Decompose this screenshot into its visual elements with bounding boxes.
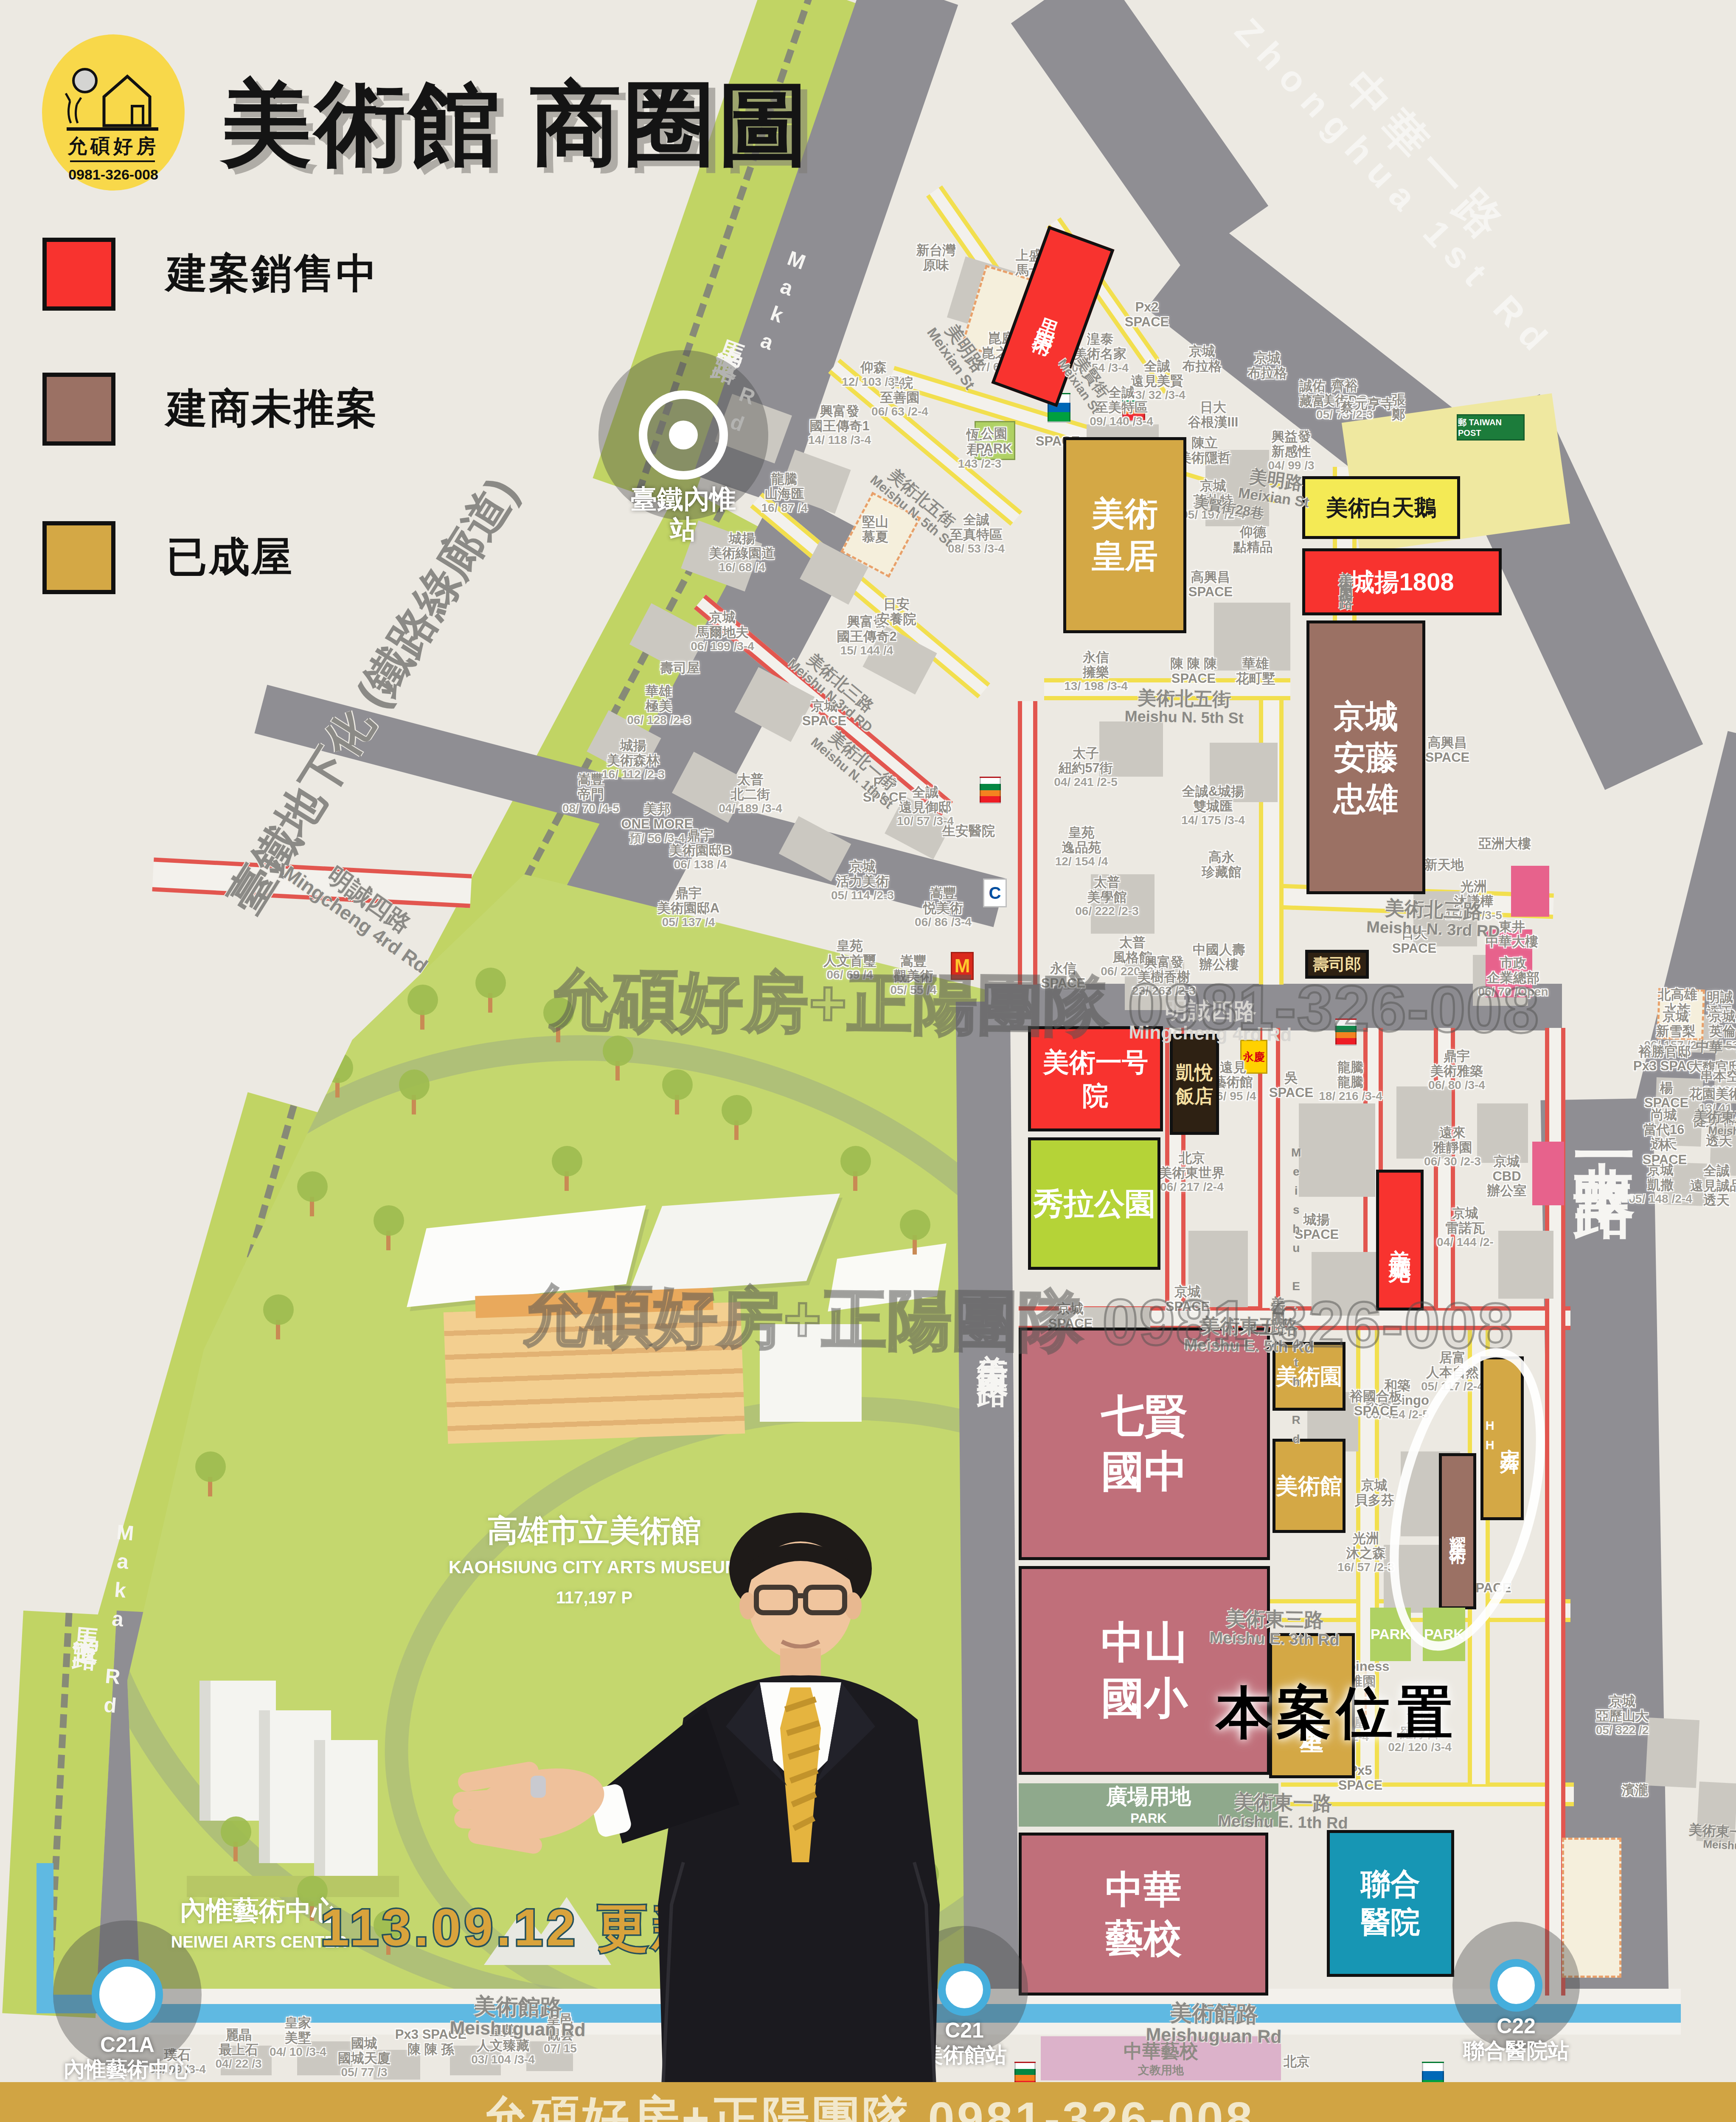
station-name-臺鐵內惟站: 臺鐵內惟站 <box>620 484 747 545</box>
building-美術館: 美術館 <box>1273 1439 1346 1533</box>
tree-icon <box>662 1069 693 1100</box>
tree-icon <box>280 968 311 998</box>
map-label: 高興昌SPACE <box>1188 570 1233 599</box>
building-label: 美術館 <box>1276 1472 1342 1500</box>
map-label: 京城貝多芬 <box>1355 1478 1394 1507</box>
map-label: 新台灣原味 <box>916 243 956 272</box>
map-label: 華雄花町墅 <box>1236 657 1275 686</box>
building-美術皇居: 美術皇居 <box>1063 437 1186 633</box>
map-label: 吳SPACE <box>1269 1071 1314 1100</box>
legend-item-completed: 已成屋 <box>42 521 294 594</box>
road-label-美術北五街: 美術北五街Meishu N. 5th St <box>1124 688 1244 727</box>
tree-icon <box>552 1146 582 1176</box>
building-label: 美術一号院 <box>1031 1045 1160 1113</box>
tree-icon <box>297 1171 328 1202</box>
tree-icon <box>399 1069 430 1100</box>
carrefour-icon: C <box>983 879 1007 907</box>
building-label: 中華藝校 <box>1105 1865 1182 1963</box>
page-title: 美術館 商圈圖 <box>221 64 812 187</box>
station-ring-C21A <box>92 1959 163 2030</box>
map-label: 濱瀧 <box>1622 1783 1648 1798</box>
map-label: 國城國城天廈05/ 77 /3 <box>338 2036 390 2079</box>
map-label: 皇苑逸品苑12/ 154 /4 <box>1055 825 1108 868</box>
building-秀拉公園: 秀拉公園 <box>1028 1137 1160 1270</box>
map-label: 蔡 <box>1341 400 1354 415</box>
building-label: 凱悅飯店 <box>1176 1061 1213 1109</box>
building-label: 秀拉公園 <box>1033 1184 1155 1223</box>
map-label: 京城雷諾瓦04/ 144 /2- <box>1437 1206 1494 1249</box>
tree-icon <box>357 972 361 991</box>
map-label: 龍騰龍騰18/ 216 /3-4 <box>1319 1060 1382 1103</box>
tree-icon <box>722 1095 752 1126</box>
building-label: 聯合醫院 <box>1361 1865 1420 1941</box>
map-label: 仰德點精品 <box>1233 525 1273 554</box>
map-label: 全誠遠見御邸10/ 57 /3-4 <box>897 785 954 828</box>
poster-canvas: ◉CM永慶郵 TAIWAN POST蔡上盛建設馬卡名墅新台灣原味崑庭崑之庭17/… <box>0 0 1736 2122</box>
station-name-C22: C22聯合醫院站 <box>1431 2014 1601 2063</box>
map-label: 京城亞歷山大05/ 322 /2 <box>1596 1694 1649 1737</box>
station-ring-C22 <box>1490 1959 1542 2012</box>
tree-icon <box>840 1146 871 1176</box>
building-聯合醫院: 聯合醫院 <box>1327 1830 1454 1977</box>
building-中華藝校: 中華藝校 <box>1019 1833 1268 1996</box>
building-label: 美術皇居 <box>1092 493 1158 578</box>
pink-building <box>1532 1142 1564 1205</box>
tree-icon <box>475 968 506 998</box>
building-footprint <box>1299 1103 1375 1197</box>
map-label: 裕國合板SPACE <box>1350 1389 1402 1418</box>
map-label: 日安安養院 <box>877 597 916 626</box>
legend-label: 已成屋 <box>166 530 294 585</box>
tree-icon <box>221 1816 251 1847</box>
map-label: Px2SPACE <box>1125 300 1169 329</box>
legend-label: 建案銷售中 <box>166 247 379 302</box>
tree-icon <box>195 1451 226 1482</box>
building-label: 美術白天鵝 <box>1326 494 1436 522</box>
lrt-line <box>37 1863 53 2012</box>
map-label: 太普美學館06/ 222 /2-3 <box>1075 875 1138 918</box>
building-label: 里山美術 <box>1037 301 1068 332</box>
legend-swatch-red <box>42 238 115 311</box>
map-label: 鼎宇美術雅築06/ 80 /3-4 <box>1428 1049 1485 1092</box>
road-label-美術北三路: 美術北三路Meishu N. 3rd RD <box>1366 897 1501 940</box>
logo-phone-text: 0981-326-008 <box>68 166 158 182</box>
map-label: 鼎宇美術園邸A05/ 137 /4 <box>657 886 719 929</box>
map-label: 美邦ONE MORE預/ 56 /3-4 <box>621 802 693 845</box>
agent-photo <box>403 1506 947 2086</box>
map-label: 興益發新感性04/ 99 /3 <box>1268 429 1315 472</box>
legend-label: 建商未推案 <box>166 382 379 437</box>
tree-icon <box>323 1053 353 1083</box>
tree-icon <box>374 1205 404 1236</box>
map-label: 太子紐約57街04/ 241 /2-5 <box>1054 746 1117 789</box>
map-label: 麗晶最上石04/ 22 /3 <box>216 2028 262 2071</box>
street <box>1018 701 1037 985</box>
map-label: 公園PARK <box>976 427 1012 456</box>
map-label: 楊SPACE <box>1644 1081 1689 1110</box>
building-footprint <box>1645 1718 1699 1788</box>
seven-eleven-icon <box>980 777 1001 804</box>
map-label: 光洲沐之森16/ 57 /2-3 <box>1337 1531 1394 1574</box>
road-label-美術東三路: 美術東三路Meishu E. 3th Rd <box>1209 1607 1340 1649</box>
footer-team-phone: 允碩好房+正陽團隊 0981-326-008 <box>0 2087 1736 2122</box>
tree-icon <box>900 1210 930 1240</box>
map-label: 亞洲大樓 <box>1478 836 1531 851</box>
brand-logo: 允碩好房 0981-326-008 <box>40 33 187 192</box>
building-京城安藤忠雄: 京城安藤忠雄 <box>1306 620 1425 894</box>
map-label: 誠佑藏富 <box>1299 379 1326 408</box>
map-label: 興富發國王傳奇114/ 118 /3-4 <box>808 404 871 447</box>
building-label: 美廳苑 <box>1386 1231 1414 1249</box>
road-label-明誠四路: 明誠四路Mingcheng 4rd Rd <box>280 840 447 977</box>
map-label: 嵩豐悦美術06/ 86 /3-4 <box>915 886 972 929</box>
taiwan-post-icon: 郵 TAIWAN POST <box>1457 414 1525 441</box>
map-label: 高興昌SPACE <box>1425 735 1470 765</box>
road-label-美術東四路: 美術東四路 <box>1338 560 1354 590</box>
tree-icon <box>407 985 438 1015</box>
building-label: 中山國小 <box>1101 1615 1188 1726</box>
map-label: 龍騰山海匯16/ 87 /4 <box>761 472 808 515</box>
map-label: 仰森12/ 103 /3-4 <box>842 360 905 388</box>
legend-item-unreleased: 建商未推案 <box>42 373 379 446</box>
map-label: 全誠&城揚雙城匯14/ 175 /3-4 <box>1181 784 1244 827</box>
map-label: 堅山慕夏 <box>862 515 888 544</box>
road-label-美術東五路: 美術東五路Meishu <box>1693 1109 1736 1138</box>
legend-swatch-gold <box>42 521 115 594</box>
building-美術白天鵝: 美術白天鵝 <box>1302 476 1460 539</box>
meishu-e-2nd-rd <box>956 1001 1019 1997</box>
pink-building <box>1511 866 1549 917</box>
building-label: 京城安藤忠雄 <box>1334 696 1398 820</box>
map-label: 元亨寺 <box>1355 397 1394 412</box>
building-label: 廣場用地PARK <box>1106 1783 1191 1827</box>
map-label: 北京美術東世界06/ 217 /2-4 <box>1159 1151 1225 1194</box>
map-label: 京城凱撒05/ 148 /2-4 <box>1629 1163 1692 1206</box>
map-label: 京城布拉格 <box>1183 344 1222 373</box>
map-label: 裕勝官邸 <box>1638 1044 1691 1059</box>
map-label: 京城活力美術05/ 114 /2-3 <box>831 859 894 902</box>
map-label: 高永珍藏館 <box>1202 850 1242 879</box>
map-label: 壽司屋 <box>660 661 700 676</box>
map-label: 華雄極美06/ 128 /2-3 <box>627 684 690 727</box>
map-label: 永信擁樂13/ 198 /3-4 <box>1064 650 1127 693</box>
building-label: 城揚1808 <box>1350 566 1454 598</box>
legend-item-selling: 建案銷售中 <box>42 238 379 311</box>
map-label: 皇家美墅04/ 10 /3-4 <box>270 2016 326 2059</box>
map-label: 陳 陳 陳SPACE <box>1170 657 1217 686</box>
watermark-text: 允碩好房+正陽團隊 0981-326-008 <box>522 1273 1515 1370</box>
map-label: 遠來雅靜園06/ 30 /2-3 <box>1424 1126 1481 1168</box>
building-城揚1808: 城揚1808 <box>1302 548 1502 615</box>
map-label: 張鄭 <box>1392 393 1405 422</box>
road-label-美術東一路: 美術東一路Meishu E. 1th Rd <box>1218 1791 1348 1832</box>
map-label: 新天地 <box>1424 858 1464 873</box>
arts-center-building <box>314 1740 378 1880</box>
building-label: 七賢國中 <box>1101 1388 1188 1499</box>
watermark-text: 允碩好房+正陽團隊 0981-326-008 <box>547 957 1540 1055</box>
map-label: 全誠遠見誠品透天 <box>1690 1164 1736 1208</box>
tree-icon <box>238 1040 268 1070</box>
map-label: 城揚美術森林16/ 112 /2-3 <box>602 738 665 781</box>
footer-bar: 允碩好房+正陽團隊 0981-326-008 ✉ shou6008.icloud… <box>0 2082 1736 2122</box>
site-location-label: 本案位置 <box>1216 1676 1457 1751</box>
map-label: 京城馬爾地夫06/ 199 /3-4 <box>691 610 754 653</box>
tree-icon <box>250 1065 255 1085</box>
tree-icon <box>344 946 374 977</box>
station-dot <box>669 421 698 449</box>
map-label: 京城CBD辦公室 <box>1487 1154 1527 1199</box>
logo-brand-text: 允碩好房 <box>67 135 159 157</box>
map-label: 北京 <box>1284 2055 1310 2069</box>
tree-icon <box>263 1294 294 1325</box>
map-label: 日大谷根漢III <box>1188 400 1239 429</box>
road-label-中華一路: 中華一路 <box>1570 1112 1639 1136</box>
road-label-美術東一路: 美術東一路Meishu <box>1688 1822 1736 1853</box>
road-label-美術館路: 美術館路Meishuguan Rd <box>1146 2000 1282 2047</box>
legend-swatch-brown <box>42 373 115 446</box>
map-label: 京城布拉格 <box>1248 351 1287 380</box>
tree-icon <box>293 993 297 1013</box>
map-label: 太普北二街04/ 189 /3-4 <box>719 772 782 815</box>
